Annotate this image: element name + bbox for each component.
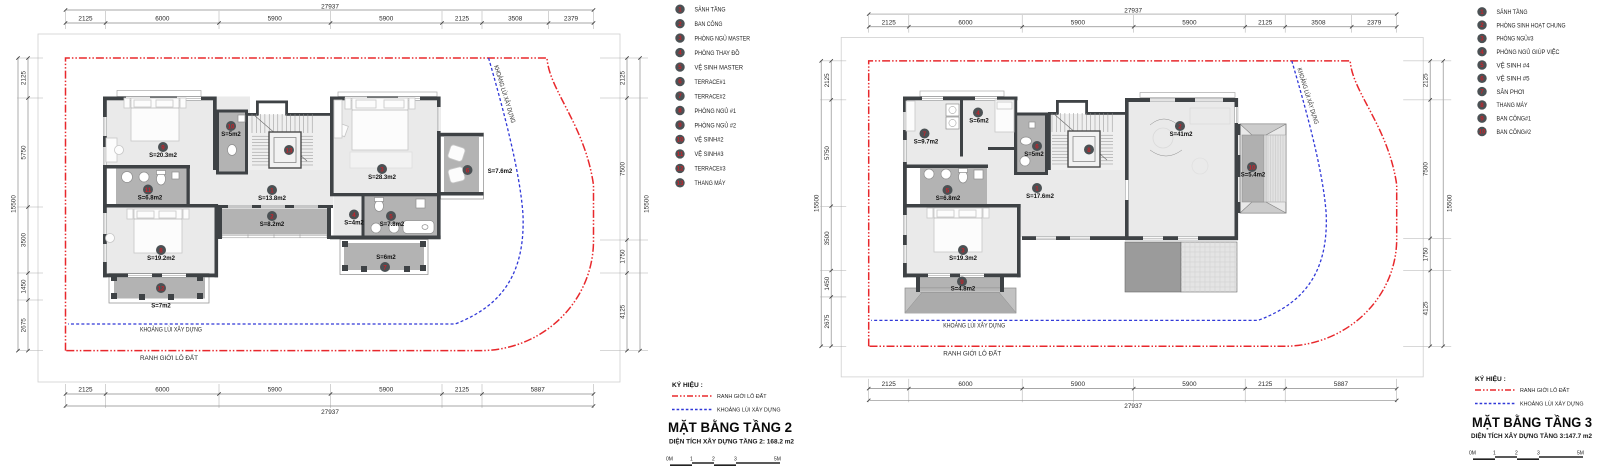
svg-text:THANG MÁY: THANG MÁY bbox=[695, 180, 726, 187]
svg-text:VỆ SINH #5: VỆ SINH #5 bbox=[1497, 75, 1531, 83]
svg-text:PHÒNG SINH HOẠT CHUNG: PHÒNG SINH HOẠT CHUNG bbox=[1497, 22, 1566, 29]
svg-text:2: 2 bbox=[1480, 22, 1484, 29]
svg-text:11: 11 bbox=[145, 187, 152, 194]
svg-text:1: 1 bbox=[1493, 451, 1496, 457]
svg-text:BAN CÔNG#1: BAN CÔNG#1 bbox=[1497, 116, 1532, 123]
svg-text:KHOẢNG LÙI XÂY DỰNG: KHOẢNG LÙI XÂY DỰNG bbox=[717, 407, 781, 414]
svg-text:5: 5 bbox=[678, 64, 682, 71]
svg-text:S=6.8m2: S=6.8m2 bbox=[138, 196, 163, 202]
svg-text:KÝ HIỆU :: KÝ HIỆU : bbox=[1475, 374, 1506, 383]
svg-text:S=5.4m2: S=5.4m2 bbox=[1241, 173, 1266, 179]
svg-text:12: 12 bbox=[677, 166, 684, 173]
svg-text:S=7m2: S=7m2 bbox=[151, 304, 171, 310]
svg-text:6: 6 bbox=[1480, 75, 1484, 82]
svg-text:5: 5 bbox=[389, 213, 393, 220]
svg-text:4: 4 bbox=[976, 110, 980, 117]
svg-text:S=19.3m2: S=19.3m2 bbox=[949, 256, 978, 262]
svg-text:1: 1 bbox=[270, 187, 274, 194]
svg-text:S=7.6m2: S=7.6m2 bbox=[488, 169, 513, 175]
svg-text:TERRACE#2: TERRACE#2 bbox=[695, 93, 726, 100]
svg-text:10: 10 bbox=[228, 123, 235, 130]
svg-text:S=6.8m2: S=6.8m2 bbox=[936, 196, 961, 202]
svg-text:8: 8 bbox=[1480, 102, 1484, 109]
svg-text:VỆ SINH #4: VỆ SINH #4 bbox=[1497, 61, 1531, 69]
svg-text:S=5m2: S=5m2 bbox=[221, 132, 241, 138]
svg-text:9: 9 bbox=[678, 122, 682, 129]
svg-text:S=5m2: S=5m2 bbox=[1024, 152, 1044, 158]
svg-text:PHÒNG NGỦ #1: PHÒNG NGỦ #1 bbox=[695, 108, 737, 115]
svg-text:9: 9 bbox=[161, 144, 165, 151]
svg-text:TERRACE#1: TERRACE#1 bbox=[695, 79, 726, 86]
svg-text:1: 1 bbox=[678, 6, 682, 13]
svg-text:11: 11 bbox=[677, 151, 684, 158]
svg-text:8: 8 bbox=[678, 108, 682, 115]
svg-text:3: 3 bbox=[961, 247, 965, 254]
svg-text:5: 5 bbox=[946, 187, 950, 194]
svg-text:7: 7 bbox=[678, 93, 682, 100]
svg-text:PHÒNG NGỦ MASTER: PHÒNG NGỦ MASTER bbox=[695, 35, 751, 42]
svg-text:S=4m2: S=4m2 bbox=[344, 221, 364, 227]
svg-text:2: 2 bbox=[270, 213, 274, 220]
svg-text:13: 13 bbox=[677, 180, 684, 187]
svg-text:9: 9 bbox=[960, 279, 964, 286]
svg-text:10: 10 bbox=[1249, 164, 1256, 171]
svg-text:1: 1 bbox=[1035, 185, 1039, 192]
svg-text:5: 5 bbox=[1480, 62, 1484, 69]
svg-text:6: 6 bbox=[1035, 143, 1039, 150]
svg-text:10: 10 bbox=[677, 137, 684, 144]
svg-text:SẢNH TẦNG: SẢNH TẦNG bbox=[695, 7, 726, 14]
svg-text:S=20.3m2: S=20.3m2 bbox=[149, 153, 178, 159]
svg-text:9: 9 bbox=[1480, 115, 1484, 122]
svg-text:7: 7 bbox=[1480, 89, 1484, 96]
svg-text:2: 2 bbox=[1515, 451, 1518, 457]
svg-text:2: 2 bbox=[1178, 123, 1182, 130]
svg-text:S=6m2: S=6m2 bbox=[376, 255, 396, 261]
svg-text:4: 4 bbox=[352, 212, 356, 219]
svg-text:0M: 0M bbox=[666, 457, 673, 463]
svg-text:PHÒNG THAY ĐỒ: PHÒNG THAY ĐỒ bbox=[695, 50, 740, 57]
svg-text:3: 3 bbox=[1480, 36, 1484, 43]
svg-text:RANH GIỚI LÔ ĐẤT: RANH GIỚI LÔ ĐẤT bbox=[1520, 387, 1570, 394]
svg-text:1: 1 bbox=[1480, 9, 1484, 16]
svg-text:8: 8 bbox=[159, 247, 163, 254]
svg-text:PHÒNG NGỦ GIÚP VIỆC: PHÒNG NGỦ GIÚP VIỆC bbox=[1497, 48, 1560, 56]
svg-text:BAN CÔNG#2: BAN CÔNG#2 bbox=[1497, 129, 1532, 136]
svg-text:PHÒNG NGỦ #2: PHÒNG NGỦ #2 bbox=[695, 122, 737, 129]
svg-text:MẶT BẰNG TẦNG 3: MẶT BẰNG TẦNG 3 bbox=[1472, 415, 1592, 430]
svg-text:7: 7 bbox=[383, 264, 387, 271]
svg-text:S=17.6m2: S=17.6m2 bbox=[1026, 194, 1055, 200]
svg-text:3: 3 bbox=[1537, 451, 1540, 457]
svg-text:6: 6 bbox=[466, 167, 470, 174]
svg-text:SẢNH TẦNG: SẢNH TẦNG bbox=[1497, 9, 1528, 16]
svg-text:S=8.2m2: S=8.2m2 bbox=[260, 222, 285, 228]
svg-text:TERRACE#3: TERRACE#3 bbox=[695, 166, 726, 173]
svg-text:PHÒNG NGỦ#3: PHÒNG NGỦ#3 bbox=[1497, 36, 1534, 43]
svg-text:S=6m2: S=6m2 bbox=[969, 119, 989, 125]
svg-text:8: 8 bbox=[1087, 147, 1091, 154]
svg-text:3: 3 bbox=[380, 166, 384, 173]
svg-text:THANG MÁY: THANG MÁY bbox=[1497, 102, 1528, 109]
svg-text:2: 2 bbox=[678, 21, 682, 28]
svg-text:VỆ SINH#3: VỆ SINH#3 bbox=[695, 150, 725, 158]
svg-text:10: 10 bbox=[1479, 129, 1486, 136]
svg-text:S=7.8m2: S=7.8m2 bbox=[380, 222, 405, 228]
svg-text:5M: 5M bbox=[774, 457, 781, 463]
svg-text:BAN CÔNG: BAN CÔNG bbox=[695, 21, 723, 28]
svg-text:SÂN PHƠI: SÂN PHƠI bbox=[1497, 89, 1525, 96]
svg-text:MẶT BẰNG TẦNG 2: MẶT BẰNG TẦNG 2 bbox=[668, 420, 792, 435]
svg-text:4: 4 bbox=[678, 50, 682, 57]
svg-text:12: 12 bbox=[158, 285, 165, 292]
svg-text:S=28.3m2: S=28.3m2 bbox=[368, 175, 397, 181]
svg-text:1: 1 bbox=[690, 457, 693, 463]
svg-text:VỆ SINH MASTER: VỆ SINH MASTER bbox=[695, 63, 744, 71]
svg-text:6: 6 bbox=[678, 79, 682, 86]
svg-text:KHOẢNG LÙI XÂY DỰNG: KHOẢNG LÙI XÂY DỰNG bbox=[1520, 401, 1584, 408]
svg-text:S=4.8m2: S=4.8m2 bbox=[951, 287, 976, 293]
svg-text:KÝ HIỆU :: KÝ HIỆU : bbox=[672, 380, 703, 389]
svg-text:13: 13 bbox=[286, 147, 293, 154]
svg-text:S=41m2: S=41m2 bbox=[1170, 132, 1194, 138]
svg-text:4: 4 bbox=[1480, 49, 1484, 56]
svg-text:RANH GIỚI LÔ ĐẤT: RANH GIỚI LÔ ĐẤT bbox=[717, 393, 767, 400]
svg-text:3: 3 bbox=[678, 35, 682, 42]
svg-text:S=19.2m2: S=19.2m2 bbox=[147, 256, 176, 262]
svg-text:0M: 0M bbox=[1469, 451, 1476, 457]
svg-text:VỆ SINH#2: VỆ SINH#2 bbox=[695, 136, 725, 144]
svg-text:S=13.8m2: S=13.8m2 bbox=[258, 196, 287, 202]
svg-text:5M: 5M bbox=[1577, 451, 1584, 457]
svg-text:3: 3 bbox=[734, 457, 737, 463]
svg-text:7: 7 bbox=[923, 131, 927, 138]
svg-text:S=9.7m2: S=9.7m2 bbox=[914, 140, 939, 146]
svg-text:2: 2 bbox=[712, 457, 715, 463]
